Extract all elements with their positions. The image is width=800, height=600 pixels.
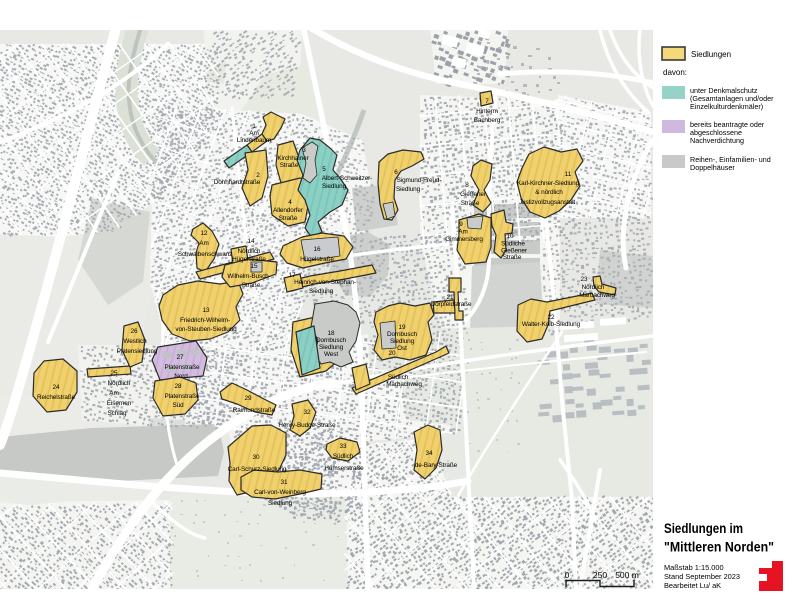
svg-text:21: 21 bbox=[447, 294, 454, 301]
svg-text:Straße: Straße bbox=[461, 200, 480, 207]
svg-text:Maßstab 1:15.000: Maßstab 1:15.000 bbox=[664, 563, 724, 572]
svg-text:Bearbeitet Lu/ aK: Bearbeitet Lu/ aK bbox=[664, 581, 721, 590]
svg-text:Walter-Kolb-Siedlung: Walter-Kolb-Siedlung bbox=[522, 321, 581, 328]
svg-text:Siedlungen: Siedlungen bbox=[691, 50, 731, 59]
svg-text:"Mittleren Norden": "Mittleren Norden" bbox=[664, 539, 774, 555]
svg-text:Justizvollzugsanstalt: Justizvollzugsanstalt bbox=[519, 199, 575, 206]
svg-text:Karl-Kirchner-Siedlung: Karl-Kirchner-Siedlung bbox=[517, 180, 580, 187]
svg-text:0: 0 bbox=[565, 570, 570, 580]
svg-text:Gimmersberg: Gimmersberg bbox=[445, 236, 483, 243]
svg-text:Dohnhardtstraße: Dohnhardtstraße bbox=[214, 179, 261, 186]
svg-text:22: 22 bbox=[548, 314, 555, 321]
svg-text:& nördlich: & nördlich bbox=[535, 189, 563, 196]
svg-text:Heinrich-von-Stephan-: Heinrich-von-Stephan- bbox=[294, 279, 356, 286]
svg-text:500 m: 500 m bbox=[615, 570, 639, 580]
svg-text:9: 9 bbox=[459, 221, 463, 228]
svg-text:Am: Am bbox=[458, 229, 467, 236]
svg-text:17: 17 bbox=[289, 272, 296, 279]
svg-text:2: 2 bbox=[256, 172, 260, 179]
svg-text:Siedlungen im: Siedlungen im bbox=[664, 520, 743, 536]
svg-text:Sigmund-Freud-: Sigmund-Freud- bbox=[397, 177, 442, 184]
svg-text:250: 250 bbox=[593, 570, 607, 580]
svg-text:Siedlung: Siedlung bbox=[396, 186, 421, 193]
svg-text:davon:: davon: bbox=[663, 68, 687, 77]
svg-text:11: 11 bbox=[565, 171, 572, 178]
svg-text:8: 8 bbox=[465, 182, 469, 189]
svg-text:6: 6 bbox=[394, 169, 398, 176]
svg-text:Gießener: Gießener bbox=[460, 191, 487, 198]
svg-text:Dörpfeldstraße: Dörpfeldstraße bbox=[431, 301, 472, 308]
svg-text:Siedlung: Siedlung bbox=[309, 288, 334, 295]
svg-text:Stand September 2023: Stand September 2023 bbox=[664, 572, 740, 581]
